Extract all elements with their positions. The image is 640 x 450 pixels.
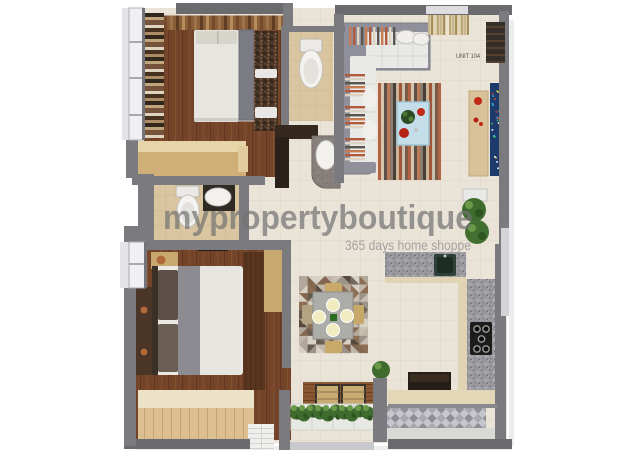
- svg-text:365 days home shoppe: 365 days home shoppe: [345, 238, 471, 253]
- svg-text:UNIT 104: UNIT 104: [456, 53, 480, 60]
- svg-text:mypropertyboutique: mypropertyboutique: [163, 199, 473, 237]
